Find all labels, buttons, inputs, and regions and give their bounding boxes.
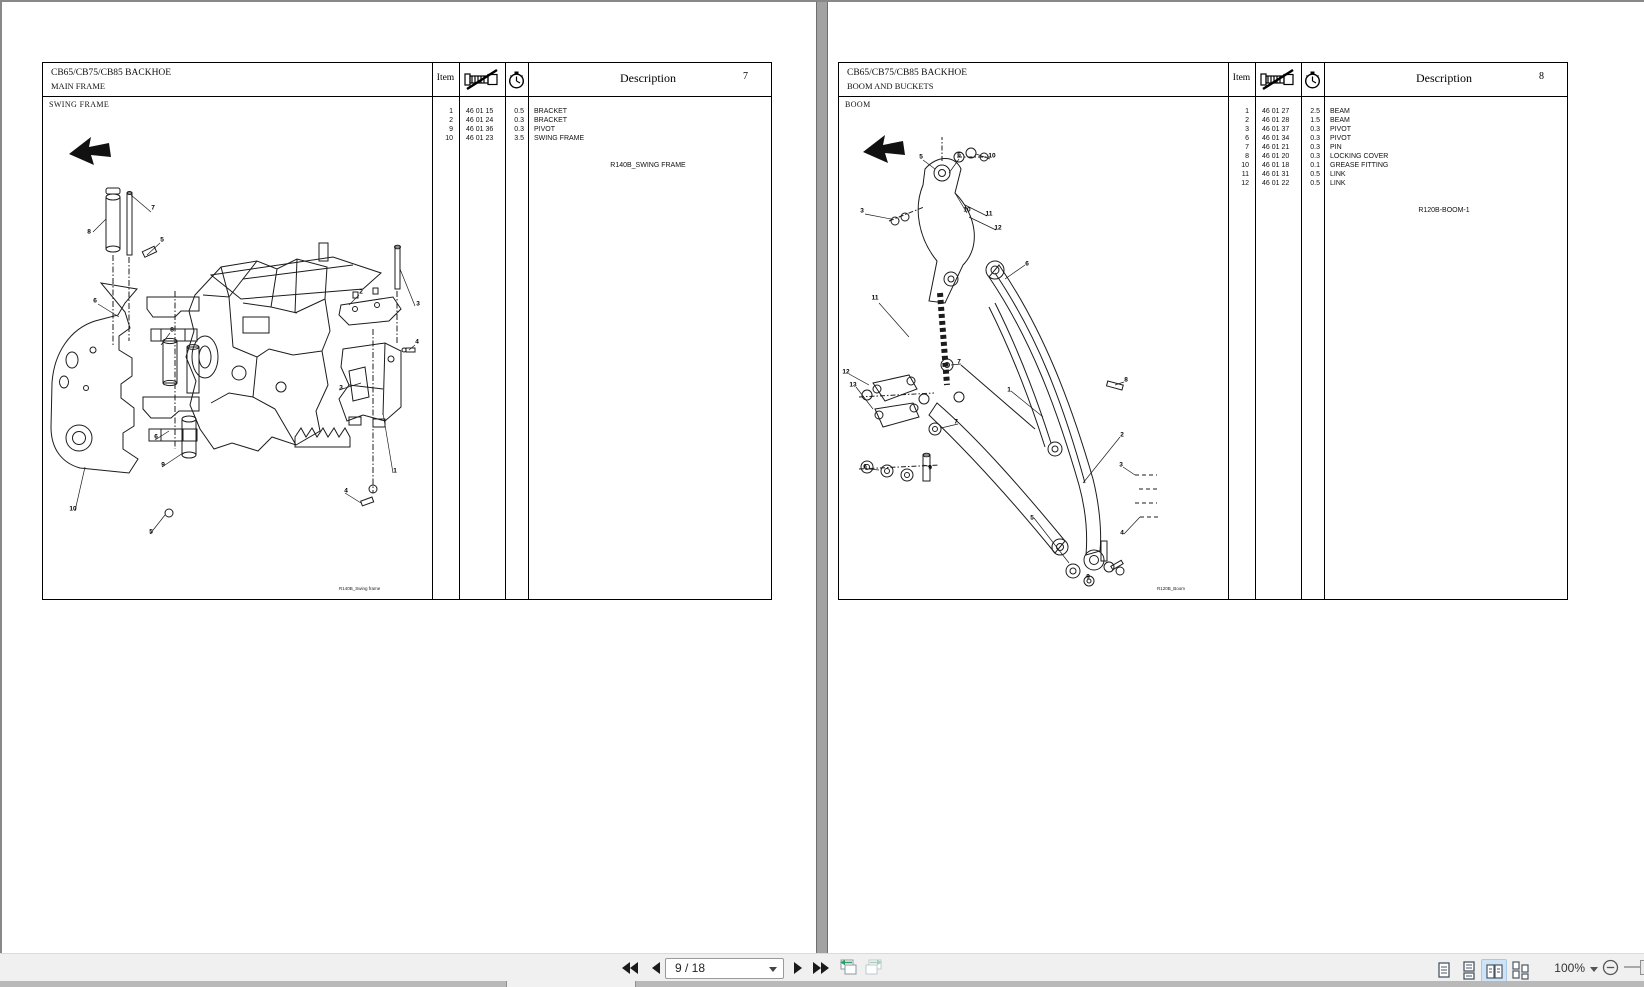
- parts-cell-part: 46 01 28: [1254, 116, 1300, 125]
- document-page-number: 8: [1499, 71, 1544, 82]
- parts-cell-item: 1: [1229, 107, 1254, 116]
- parts-cell-part: 46 01 27: [1254, 107, 1300, 116]
- bolt-icon: [1260, 69, 1298, 90]
- column-line: [432, 63, 433, 599]
- parts-cell-desc: PIVOT: [528, 125, 770, 134]
- parts-cell-item: 6: [1229, 134, 1254, 143]
- parts-cell-part: 46 01 23: [458, 134, 504, 143]
- parts-cell-item: 9: [433, 125, 458, 134]
- parts-cell-desc: LINK: [1324, 170, 1566, 179]
- figure-reference: R140B_SWING FRAME: [528, 162, 768, 169]
- parts-cell-part: 46 01 15: [458, 107, 504, 116]
- document-page-right: CB65/CB75/CB85 BACKHOE BOOM AND BUCKETS …: [828, 2, 1644, 953]
- parts-cell-desc: BEAM: [1324, 107, 1566, 116]
- document-page-number: 7: [703, 71, 748, 82]
- parts-row: 246 01 240.3BRACKET: [433, 116, 770, 125]
- viewer-toolbar: 9 / 18: [0, 953, 1644, 982]
- zoom-level-value[interactable]: 100%: [1541, 961, 1585, 975]
- parts-cell-part: 46 01 37: [1254, 125, 1300, 134]
- parts-cell-desc: BRACKET: [528, 116, 770, 125]
- parts-cell-desc: GREASE FITTING: [1324, 161, 1566, 170]
- parts-cell-hrs: 2.5: [1300, 107, 1324, 116]
- parts-cell-hrs: 0.5: [1300, 170, 1324, 179]
- chevron-down-icon[interactable]: [769, 967, 777, 972]
- next-view-button[interactable]: [864, 959, 886, 975]
- zoom-out-button[interactable]: [1601, 959, 1619, 975]
- parts-cell-part: 46 01 24: [458, 116, 504, 125]
- parts-cell-hrs: 0.3: [504, 125, 528, 134]
- parts-cell-part: 46 01 20: [1254, 152, 1300, 161]
- page-number-value[interactable]: 9 / 18: [675, 961, 705, 975]
- parts-row: 146 01 150.5BRACKET: [433, 107, 770, 116]
- item-column-header: Item: [1228, 73, 1255, 83]
- parts-table-frame-right: CB65/CB75/CB85 BACKHOE BOOM AND BUCKETS …: [838, 62, 1568, 600]
- parts-cell-part: 46 01 31: [1254, 170, 1300, 179]
- parts-row: 1046 01 180.1GREASE FITTING: [1229, 161, 1566, 170]
- parts-cell-hrs: 1.5: [1300, 116, 1324, 125]
- parts-rows: 146 01 150.5BRACKET246 01 240.3BRACKET94…: [433, 107, 770, 143]
- single-page-view-button[interactable]: [1432, 959, 1456, 981]
- parts-cell-desc: SWING FRAME: [528, 134, 770, 143]
- parts-cell-desc: LINK: [1324, 179, 1566, 188]
- horizontal-scrollbar-thumb[interactable]: [506, 981, 636, 987]
- parts-cell-item: 3: [1229, 125, 1254, 134]
- parts-row: 246 01 281.5BEAM: [1229, 116, 1566, 125]
- parts-cell-desc: PIVOT: [1324, 125, 1566, 134]
- last-page-button[interactable]: [811, 960, 831, 976]
- parts-row: 646 01 340.3PIVOT: [1229, 134, 1566, 143]
- boom-exploded-diagram: [839, 97, 1227, 598]
- parts-cell-hrs: 0.3: [1300, 134, 1324, 143]
- column-line: [528, 63, 529, 599]
- previous-page-button[interactable]: [649, 960, 663, 976]
- parts-cell-item: 2: [1229, 116, 1254, 125]
- parts-cell-hrs: 0.3: [1300, 152, 1324, 161]
- parts-cell-part: 46 01 21: [1254, 143, 1300, 152]
- parts-cell-hrs: 3.5: [504, 134, 528, 143]
- stopwatch-icon: [1304, 71, 1321, 89]
- parts-cell-part: 46 01 36: [458, 125, 504, 134]
- parts-cell-item: 12: [1229, 179, 1254, 188]
- parts-cell-item: 1: [433, 107, 458, 116]
- page-subtitle: BOOM AND BUCKETS: [847, 81, 933, 91]
- parts-cell-item: 11: [1229, 170, 1254, 179]
- parts-cell-part: 46 01 22: [1254, 179, 1300, 188]
- parts-cell-part: 46 01 34: [1254, 134, 1300, 143]
- parts-cell-hrs: 0.5: [504, 107, 528, 116]
- parts-cell-hrs: 0.3: [1300, 125, 1324, 134]
- facing-continuous-view-button[interactable]: [1508, 959, 1532, 981]
- horizontal-scrollbar[interactable]: [0, 981, 1644, 987]
- parts-cell-desc: PIN: [1324, 143, 1566, 152]
- bolt-icon: [464, 69, 502, 90]
- page-number-combobox[interactable]: 9 / 18: [665, 958, 784, 979]
- column-line: [505, 63, 506, 599]
- pdf-viewer-window: CB65/CB75/CB85 BACKHOE MAIN FRAME Item: [0, 0, 1644, 987]
- stopwatch-icon: [508, 71, 525, 89]
- parts-row: 746 01 210.3PIN: [1229, 143, 1566, 152]
- page-title: CB65/CB75/CB85 BACKHOE: [847, 68, 967, 78]
- parts-row: 946 01 360.3PIVOT: [433, 125, 770, 134]
- parts-row: 346 01 370.3PIVOT: [1229, 125, 1566, 134]
- page-left-edge: [0, 0, 2, 953]
- column-line: [459, 63, 460, 599]
- parts-cell-item: 10: [433, 134, 458, 143]
- swing-frame-exploded-diagram: [43, 97, 431, 598]
- parts-rows: 146 01 272.5BEAM246 01 281.5BEAM346 01 3…: [1229, 107, 1566, 188]
- first-page-button[interactable]: [620, 960, 640, 976]
- continuous-view-button[interactable]: [1457, 959, 1481, 981]
- parts-row: 1246 01 220.5LINK: [1229, 179, 1566, 188]
- page-title: CB65/CB75/CB85 BACKHOE: [51, 68, 171, 78]
- parts-cell-hrs: 0.3: [504, 116, 528, 125]
- parts-cell-part: 46 01 18: [1254, 161, 1300, 170]
- parts-cell-desc: BRACKET: [528, 107, 770, 116]
- parts-row: 846 01 200.3LOCKING COVER: [1229, 152, 1566, 161]
- parts-row: 1046 01 233.5SWING FRAME: [433, 134, 770, 143]
- parts-row: 1146 01 310.5LINK: [1229, 170, 1566, 179]
- next-page-button[interactable]: [791, 960, 805, 976]
- facing-pages-view-button[interactable]: [1481, 959, 1507, 983]
- parts-cell-item: 2: [433, 116, 458, 125]
- previous-view-button[interactable]: [836, 959, 858, 975]
- parts-cell-desc: BEAM: [1324, 116, 1566, 125]
- page-top-edge: [0, 0, 1644, 2]
- figure-reference: R120B-BOOM-1: [1324, 207, 1564, 214]
- parts-table-frame-left: CB65/CB75/CB85 BACKHOE MAIN FRAME Item: [42, 62, 772, 600]
- parts-row: 146 01 272.5BEAM: [1229, 107, 1566, 116]
- parts-cell-hrs: 0.5: [1300, 179, 1324, 188]
- parts-cell-desc: LOCKING COVER: [1324, 152, 1566, 161]
- parts-cell-desc: PIVOT: [1324, 134, 1566, 143]
- zoom-slider-handle[interactable]: [1640, 960, 1644, 975]
- parts-cell-hrs: 0.3: [1300, 143, 1324, 152]
- page-subtitle: MAIN FRAME: [51, 81, 105, 91]
- parts-cell-item: 7: [1229, 143, 1254, 152]
- document-page-left: CB65/CB75/CB85 BACKHOE MAIN FRAME Item: [2, 2, 816, 953]
- page-divider: [816, 0, 828, 953]
- parts-cell-item: 10: [1229, 161, 1254, 170]
- parts-cell-item: 8: [1229, 152, 1254, 161]
- item-column-header: Item: [432, 73, 459, 83]
- parts-cell-hrs: 0.1: [1300, 161, 1324, 170]
- zoom-dropdown-caret-icon[interactable]: [1590, 967, 1598, 972]
